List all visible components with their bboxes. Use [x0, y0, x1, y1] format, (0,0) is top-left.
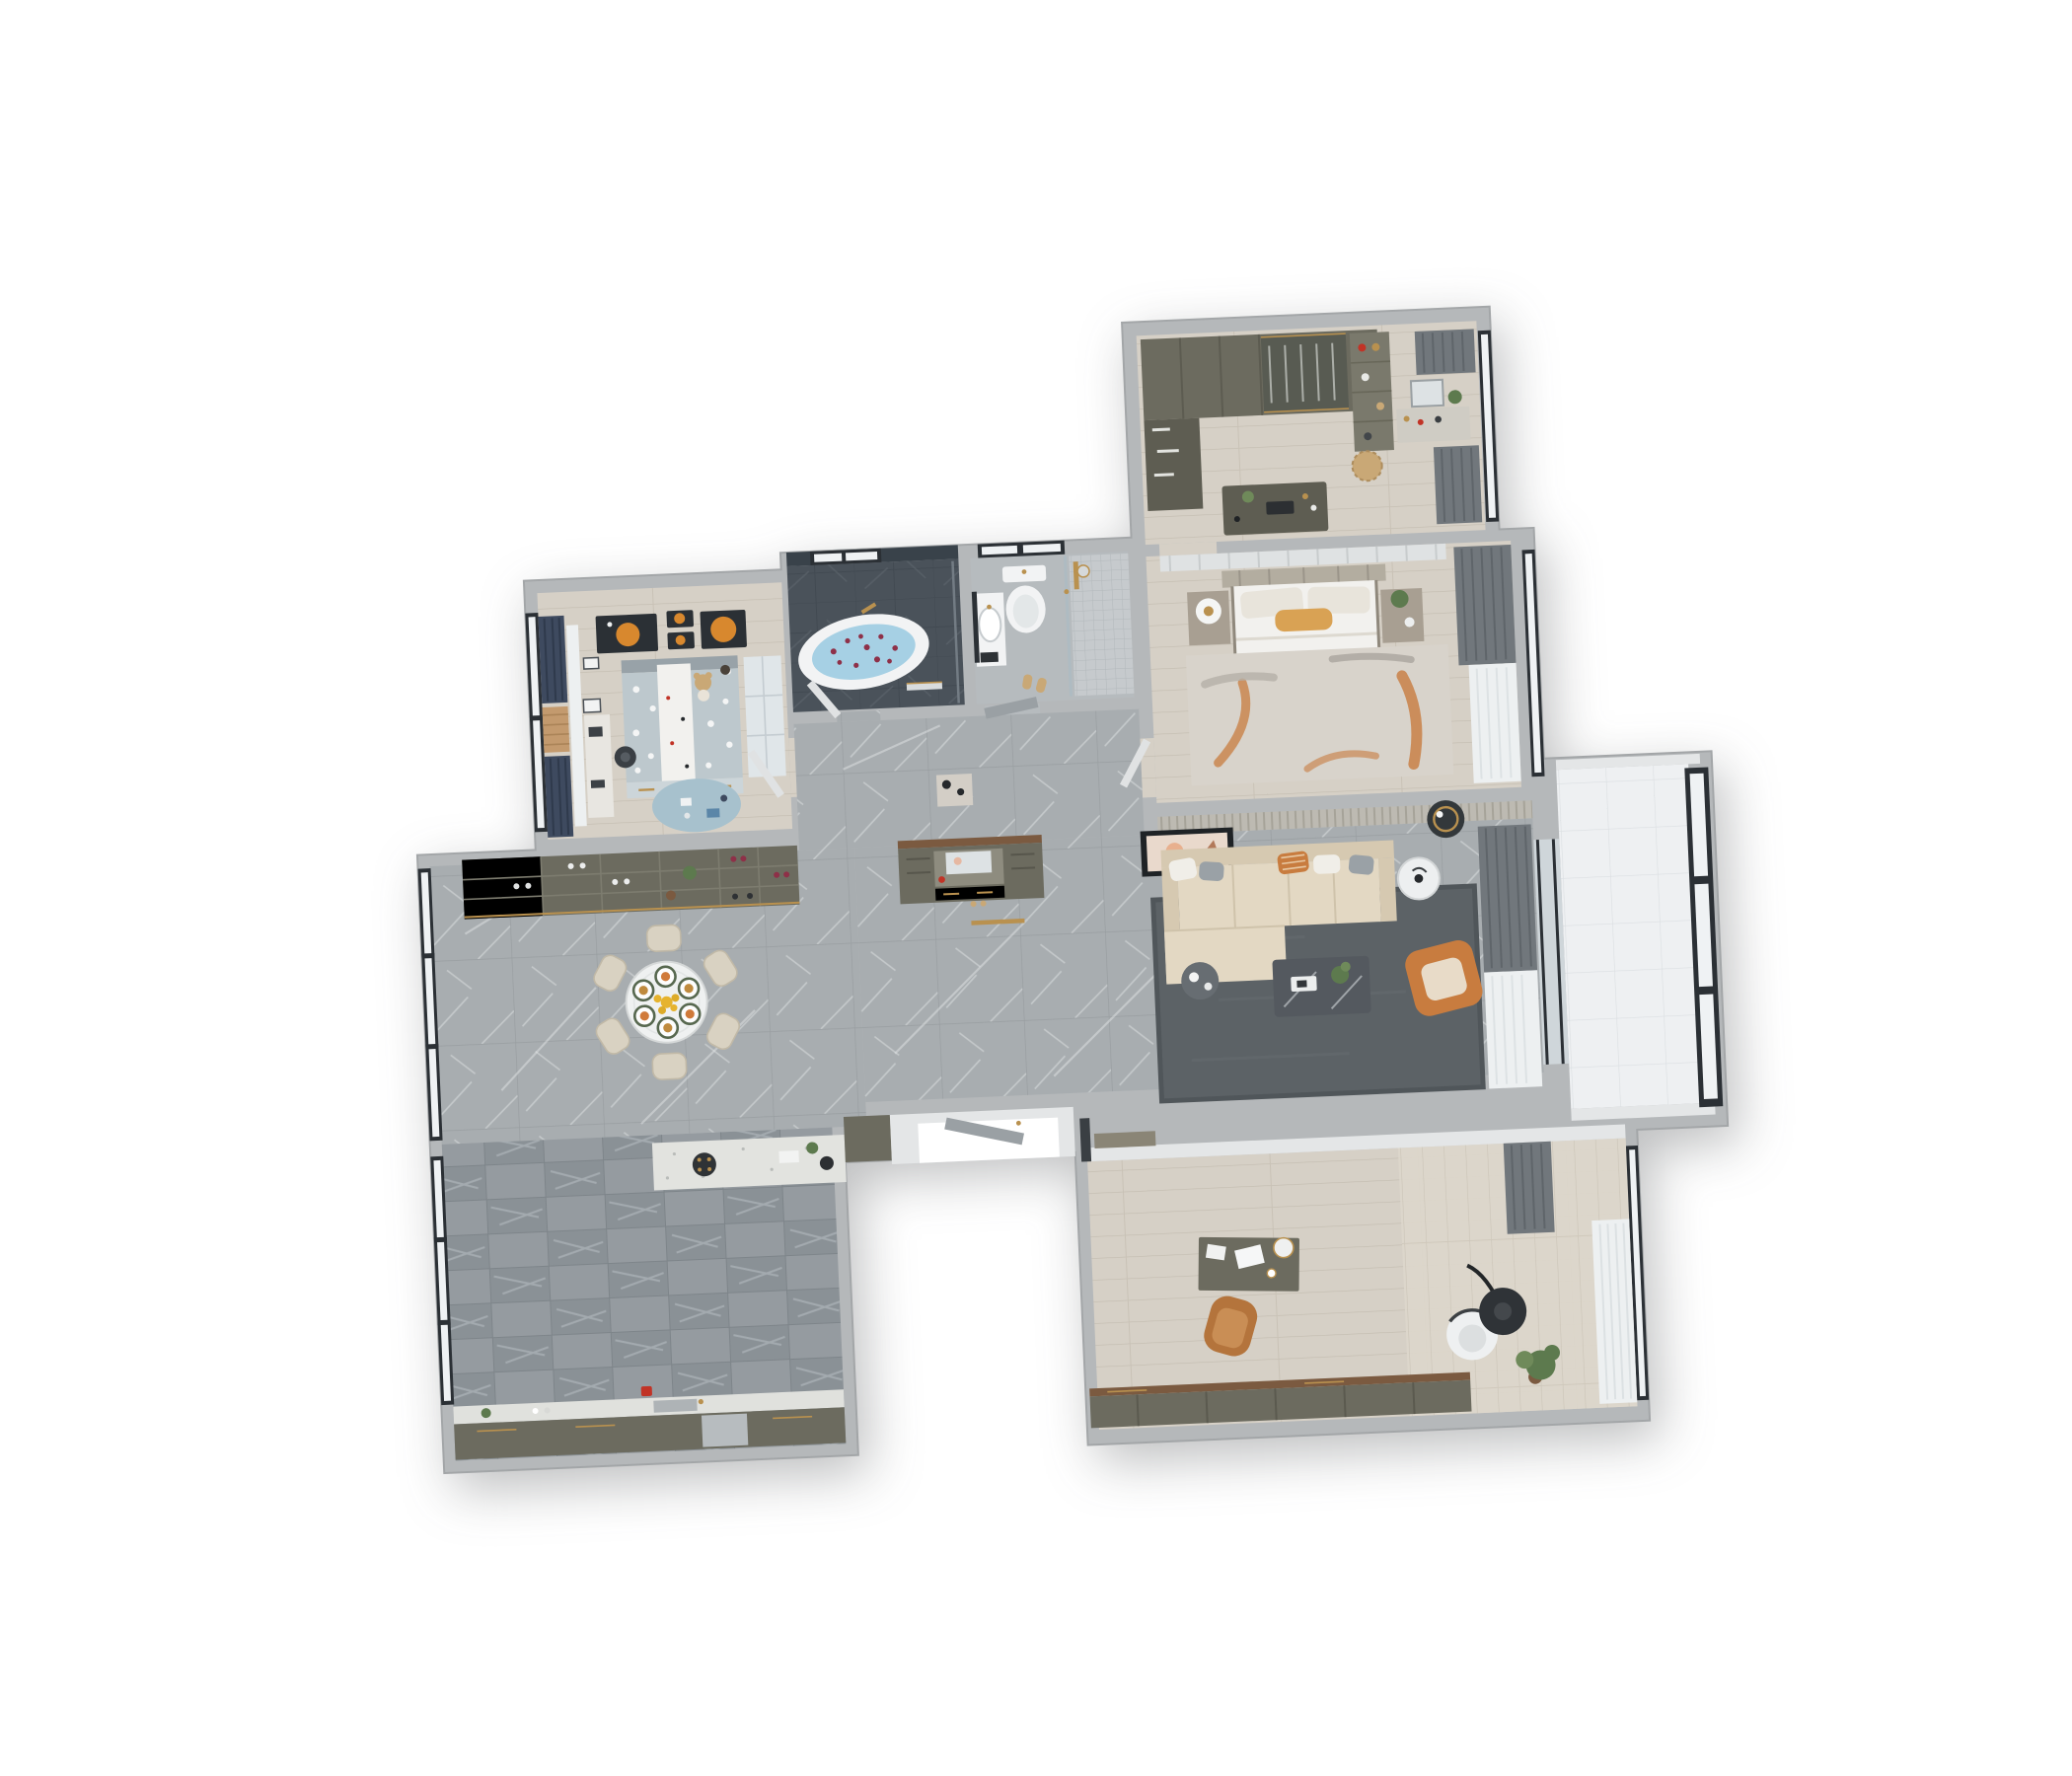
- blanket-runner: [657, 663, 696, 786]
- closet-opening: [1159, 542, 1217, 556]
- red-kettle: [641, 1386, 652, 1396]
- accessory-island: [1221, 481, 1328, 536]
- study-door-frame: [1079, 1118, 1091, 1161]
- wardrobe-run: [1141, 330, 1380, 420]
- shower-head: [1077, 565, 1090, 578]
- study-sheer-curtains: [1591, 1219, 1637, 1403]
- toy: [681, 797, 692, 805]
- sink: [653, 1399, 697, 1413]
- tray: [1266, 501, 1295, 515]
- orange-lumbar-pillow: [1275, 608, 1333, 632]
- room-entry: [890, 1107, 1075, 1164]
- dishwasher: [702, 1414, 748, 1447]
- study-curtain-panel: [1504, 1142, 1555, 1234]
- floor-plan-stage: { "scene": { "type": "3d-rendered-apartm…: [0, 0, 2072, 1776]
- tub-bath-door-opening: [837, 710, 880, 722]
- entry-opening: [918, 1118, 1060, 1163]
- floor-plan: [396, 298, 1740, 1473]
- floor-plan-svg: [0, 0, 2072, 1776]
- nightstand-right: [1380, 588, 1424, 643]
- tray: [778, 1150, 799, 1163]
- papers: [1206, 1244, 1226, 1261]
- coffee-table: [1272, 956, 1370, 1017]
- kids-wardrobe: [743, 655, 785, 777]
- writing-desk: [1199, 1237, 1299, 1292]
- console-table: [936, 774, 973, 807]
- room-corridor: [936, 774, 973, 807]
- desk-lamp: [1274, 1238, 1294, 1258]
- sofa-arm-right: [1378, 857, 1397, 922]
- study-door-leaf: [1094, 1131, 1156, 1148]
- niche-mirror: [945, 851, 992, 874]
- kitchen-tall-cabinet: [844, 1115, 892, 1162]
- entry-shoe-cabinet: [898, 835, 1045, 910]
- shelf-unit-bags: [1350, 332, 1394, 452]
- coffee-cup: [1267, 1269, 1276, 1278]
- closet-side-shelves: [1144, 418, 1203, 511]
- island-counter: [652, 1135, 847, 1190]
- kids-bed: [622, 661, 743, 788]
- side-table-white: [1397, 856, 1441, 900]
- bedroom-rug: [1186, 644, 1454, 785]
- toy: [706, 808, 719, 818]
- glass-wardrobe: [1261, 333, 1349, 412]
- balcony-floor: [1556, 764, 1703, 1109]
- counter-tray: [981, 652, 999, 663]
- vanity-mirror: [1411, 380, 1443, 407]
- nightstand-left: [1187, 591, 1230, 646]
- wood-blind: [543, 706, 570, 753]
